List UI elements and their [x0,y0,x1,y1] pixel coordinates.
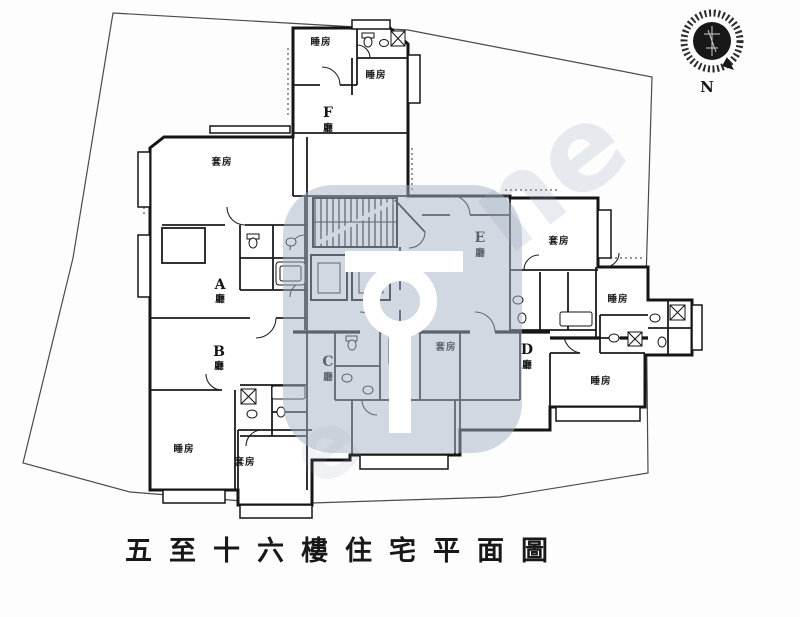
room-label-suite-a: 套房 [210,156,232,168]
watermark-logo-ring [363,264,437,338]
unit-d-hall: 廳 [522,359,532,371]
room-label-suite-e: 套房 [547,235,569,247]
room-label-bedroom-e: 睡房 [607,293,628,305]
room-label-bedroom-b: 睡房 [173,443,194,455]
watermark-logo-stem [389,333,411,433]
watermark-overlay [283,185,522,453]
unit-f-hall: 廳 [323,122,333,134]
room-label-bedroom-f2: 睡房 [365,69,386,81]
unit-a-hall: 廳 [215,293,225,305]
unit-d-label: D [521,342,533,358]
unit-a-label: A [214,277,227,293]
unit-f-label: F [323,105,333,121]
room-label-bedroom-f1: 睡房 [310,36,331,48]
room-label-bedroom-d: 睡房 [590,375,611,387]
caption: 五至十六樓住宅平面圖 [125,529,565,568]
unit-b-label: B [213,344,225,360]
room-label-suite-b: 套房 [233,456,255,468]
unit-b-hall: 廳 [214,360,224,372]
compass-north-label: N [700,78,714,96]
compass-icon: N [684,13,740,96]
floor-plan-page: A 廳 B 廳 C 廳 D 廳 E 廳 F 廳 睡房 睡房 套房 套房 睡房 睡… [0,0,800,617]
